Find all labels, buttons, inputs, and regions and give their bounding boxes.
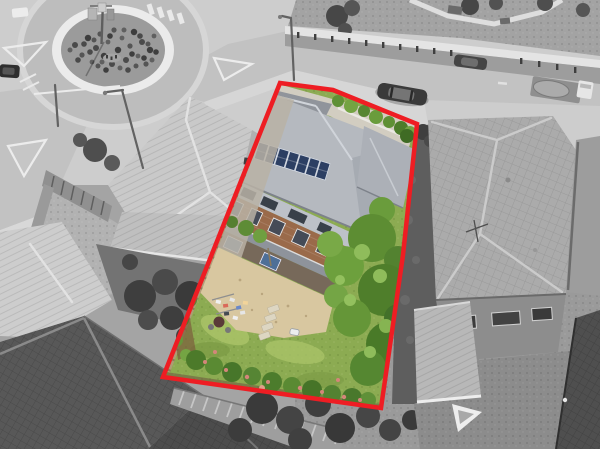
roof-vent-2 xyxy=(533,248,537,252)
corner-bush-dark-green xyxy=(400,129,414,143)
right-house-window-3 xyxy=(532,307,553,320)
right-house-roof-tiles xyxy=(428,116,588,300)
right-house-window-2 xyxy=(492,311,521,326)
yard-bush-3 xyxy=(73,133,87,147)
roof-vent-1 xyxy=(506,178,511,183)
outdoor-chair-2 xyxy=(225,327,231,333)
aerial-photo xyxy=(0,0,600,449)
right-neighbor-house xyxy=(392,116,600,449)
car-left-edge xyxy=(0,64,20,78)
outdoor-table xyxy=(214,317,225,328)
robot-mower xyxy=(290,328,300,335)
aerial-photo-canvas xyxy=(0,0,600,449)
white-parked-car xyxy=(12,7,29,18)
outdoor-chair-1 xyxy=(208,324,214,330)
yard-white-dot xyxy=(563,398,567,402)
yard-bush-2 xyxy=(104,155,120,171)
rear-ribbed-wing xyxy=(414,302,481,402)
